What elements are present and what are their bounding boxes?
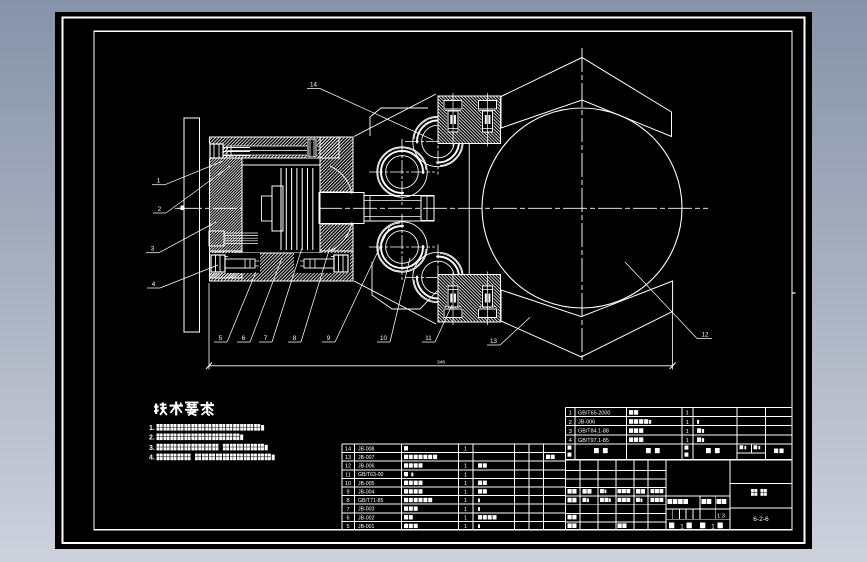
svg-text:5: 5	[219, 335, 223, 342]
svg-text:1.: 1.	[149, 425, 155, 432]
svg-text:1: 1	[569, 411, 572, 417]
svg-text:2.: 2.	[149, 435, 155, 442]
svg-text:JB-001: JB-001	[358, 524, 375, 530]
svg-text:5: 5	[346, 524, 349, 530]
svg-text:1: 1	[464, 447, 467, 453]
svg-text:11: 11	[425, 335, 432, 342]
svg-text:6: 6	[346, 516, 349, 522]
svg-text:JB-008: JB-008	[358, 446, 375, 452]
svg-text:1: 1	[464, 464, 467, 470]
svg-text:6-2-6: 6-2-6	[753, 516, 769, 523]
svg-text:7: 7	[346, 507, 349, 513]
svg-text:GB/T84.1-88: GB/T84.1-88	[578, 429, 609, 435]
svg-text:1: 1	[464, 481, 467, 487]
svg-text:GB/T97.1-85: GB/T97.1-85	[578, 438, 609, 444]
svg-text:9: 9	[327, 335, 331, 342]
svg-text:1: 1	[680, 524, 684, 531]
svg-text:1: 1	[464, 524, 467, 530]
svg-text:14: 14	[345, 447, 351, 453]
svg-text:GB/T63-00: GB/T63-00	[358, 472, 383, 478]
svg-text:JB-004: JB-004	[358, 489, 375, 495]
svg-text:12: 12	[345, 464, 351, 470]
svg-text:11: 11	[345, 472, 351, 478]
svg-text:3.: 3.	[149, 445, 155, 452]
svg-text:12: 12	[702, 332, 709, 339]
svg-text:6: 6	[242, 335, 246, 342]
svg-text:1: 1	[464, 498, 467, 504]
svg-text:1: 1	[464, 472, 467, 478]
svg-text:4: 4	[152, 281, 156, 288]
svg-text:JB-007: JB-007	[358, 455, 375, 461]
svg-text:1: 1	[711, 524, 715, 531]
svg-text:JB-003: JB-003	[358, 507, 375, 513]
svg-text:1: 1	[686, 411, 689, 417]
svg-text:3: 3	[569, 429, 572, 435]
svg-text:14: 14	[310, 82, 317, 89]
svg-text:1: 1	[464, 516, 467, 522]
svg-text:JB-006: JB-006	[358, 464, 375, 470]
svg-text:1: 1	[157, 178, 161, 185]
svg-text:2: 2	[158, 206, 162, 213]
svg-text:JB-002: JB-002	[358, 515, 375, 521]
svg-text:9: 9	[346, 490, 349, 496]
svg-text:GB/T65-2000: GB/T65-2000	[578, 411, 610, 417]
svg-text:1: 1	[464, 507, 467, 513]
svg-text:13: 13	[490, 338, 497, 345]
svg-text:1: 1	[686, 438, 689, 444]
svg-text:JB-006: JB-006	[578, 420, 595, 426]
svg-text:1: 1	[464, 490, 467, 496]
svg-text:1: 1	[686, 420, 689, 426]
svg-text:JB-005: JB-005	[358, 481, 375, 487]
svg-text:1:3: 1:3	[717, 514, 725, 520]
svg-text:3: 3	[151, 246, 155, 253]
svg-text:8: 8	[293, 335, 297, 342]
svg-text:7: 7	[264, 335, 268, 342]
svg-text:1: 1	[686, 429, 689, 435]
svg-text:GB/T71-85: GB/T71-85	[358, 498, 383, 504]
svg-text:2: 2	[569, 420, 572, 426]
svg-text:346: 346	[437, 360, 445, 366]
svg-text:8: 8	[346, 498, 349, 504]
svg-text:13: 13	[345, 455, 351, 461]
svg-text:10: 10	[345, 481, 351, 487]
svg-text:10: 10	[380, 335, 387, 342]
svg-text:4.: 4.	[149, 455, 155, 462]
